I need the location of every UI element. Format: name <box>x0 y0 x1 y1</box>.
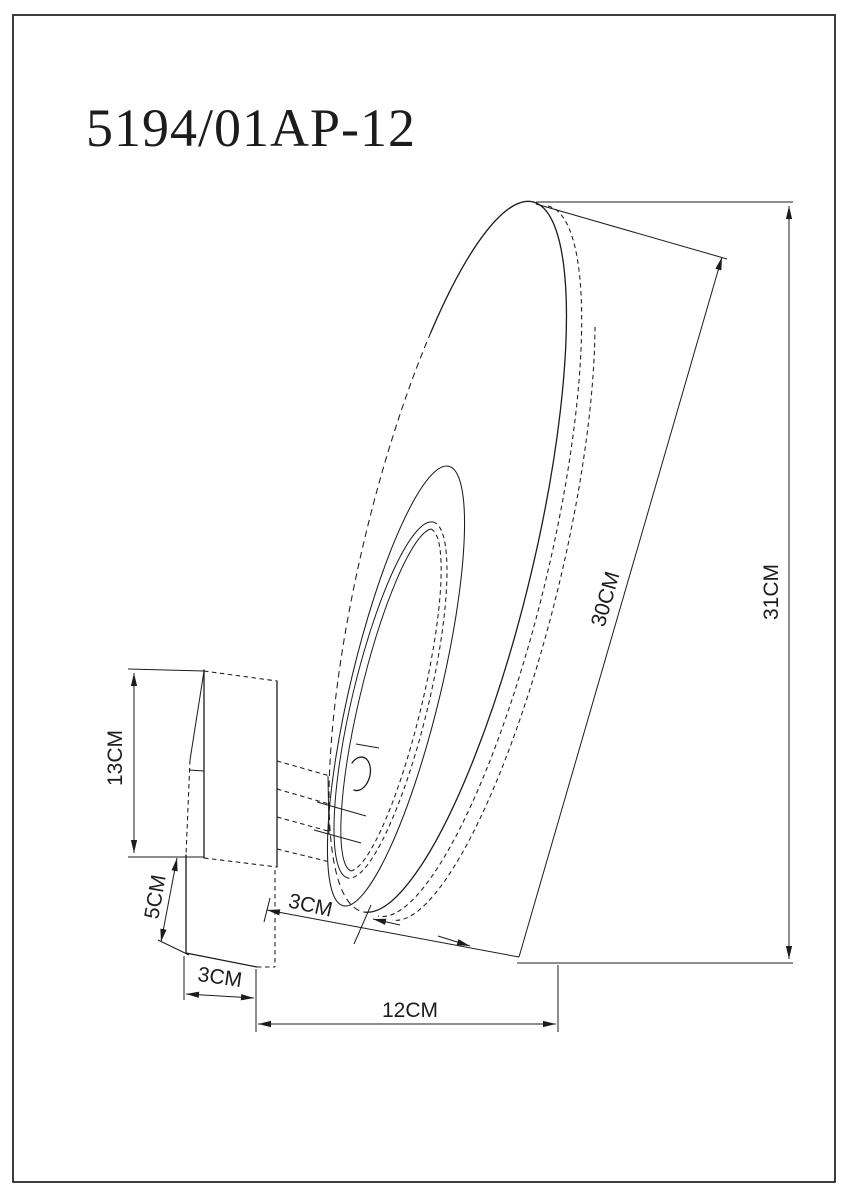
dim-label-3cm-arm: 3CM <box>286 889 334 921</box>
plate-back-edge-upper <box>190 671 204 760</box>
lamp-shade <box>299 201 595 920</box>
shade-rim-edge-hidden <box>378 206 582 916</box>
dim-overall-height: 31CM <box>517 202 793 963</box>
dim-backplate-lower: 5CM <box>140 858 189 955</box>
dim-backplate-height: 13CM <box>104 669 204 857</box>
dim-label-13cm: 13CM <box>104 730 127 786</box>
plate-bottom-edge-hidden <box>204 858 277 867</box>
dim-label-30cm: 30CM <box>587 569 625 629</box>
arm-line-2 <box>277 789 329 804</box>
dim3p-line <box>186 994 254 998</box>
shade-ring-inner-left <box>341 529 431 871</box>
plate-back-edge-hidden <box>186 760 190 855</box>
technical-drawing: 5194/01AP-12 <box>0 0 848 1200</box>
dim30-line <box>519 257 722 957</box>
plate-bottom-front-edge <box>186 953 257 967</box>
hub-seam-lower <box>314 830 361 843</box>
dimension-annotations: 30CM 31CM 13CM 5CM <box>104 202 793 1032</box>
dim-label-3cm-plate: 3CM <box>196 963 243 992</box>
dim3a-line <box>267 910 519 957</box>
plate-seam <box>189 770 204 771</box>
wall-mount <box>186 670 330 967</box>
dim30-ext-top <box>536 204 727 259</box>
plate-top-edge <box>204 671 277 681</box>
product-code: 5194/01AP-12 <box>86 98 416 158</box>
dim5-ext-bottom <box>158 940 189 955</box>
dim-backplate-depth: 3CM <box>184 956 256 1032</box>
arm-line-4 <box>277 849 330 862</box>
dim-arm-length: 3CM <box>264 889 519 957</box>
dim13-ext-top <box>128 669 204 671</box>
shade-ring-outer-right <box>348 522 447 878</box>
arm-line-1 <box>277 761 330 776</box>
dim-shade-diameter: 30CM <box>519 204 727 957</box>
drawing-page: 5194/01AP-12 <box>0 0 848 1200</box>
hub-horseshoe <box>352 757 370 790</box>
arm-line-3 <box>277 817 328 831</box>
hub-top-edge <box>356 744 379 748</box>
shade-outline-visible <box>364 201 566 912</box>
shade-outline-hidden <box>329 332 431 912</box>
shade-inner-ellipse <box>299 456 492 917</box>
dim-label-12cm: 12CM <box>382 999 438 1022</box>
dim-overall-depth: 12CM <box>258 965 558 1032</box>
dim3a-tick-right <box>354 905 371 944</box>
dim-label-31cm: 31CM <box>760 564 783 620</box>
shade-rim-edge2-hidden <box>392 327 595 920</box>
